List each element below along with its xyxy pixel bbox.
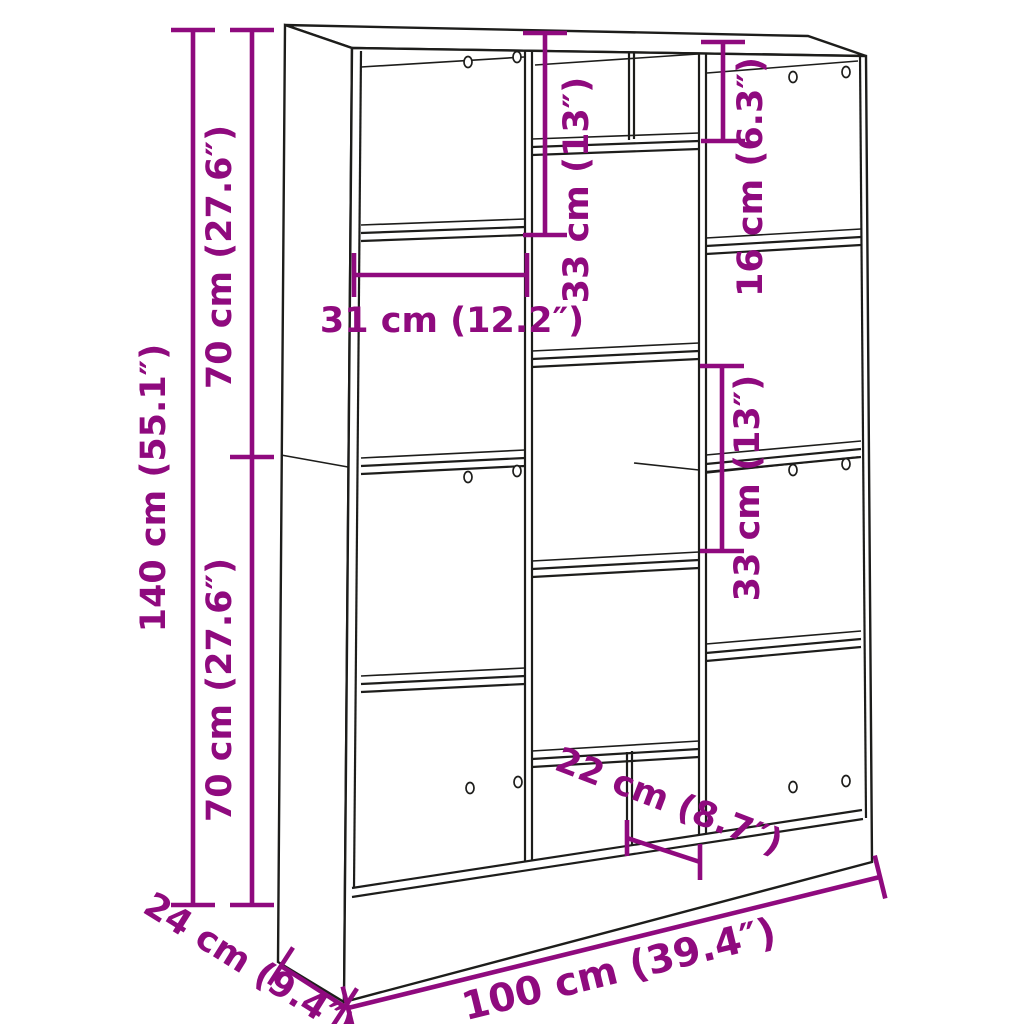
left-side-face	[278, 25, 352, 1002]
dim-height-upper-label: 70 cm (27.6″)	[200, 125, 240, 389]
dim-height-lower: 70 cm (27.6″)	[200, 457, 274, 905]
dim-height-total-label: 140 cm (55.1″)	[134, 344, 174, 633]
product-dimension-diagram: 140 cm (55.1″) 70 cm (27.6″) 70 cm (27.6…	[0, 0, 1024, 1024]
dim-middle-compartment-label: 33 cm (13″)	[728, 375, 768, 602]
dim-height-lower-label: 70 cm (27.6″)	[200, 558, 240, 822]
dim-top-right-cubby-label: 16 cm (6.3″)	[731, 57, 771, 297]
dim-height-upper: 70 cm (27.6″)	[200, 30, 274, 457]
dim-left-compartment-width-label: 31 cm (12.2″)	[320, 301, 584, 341]
dim-top-compartment-label: 33 cm (13″)	[557, 77, 597, 304]
bookcase-diagram-canvas: 140 cm (55.1″) 70 cm (27.6″) 70 cm (27.6…	[0, 0, 1024, 1024]
